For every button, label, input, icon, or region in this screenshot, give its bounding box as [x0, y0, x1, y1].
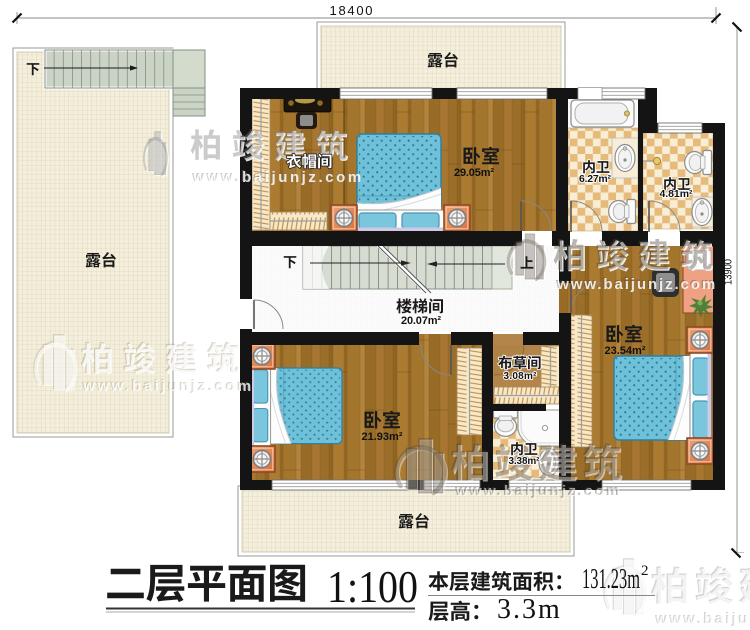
svg-text:3.38m²: 3.38m²: [509, 456, 541, 467]
svg-text:2: 2: [641, 563, 649, 579]
svg-text:20.07m²: 20.07m²: [401, 315, 441, 327]
svg-text:131.23m: 131.23m: [582, 564, 640, 595]
svg-text:3.08m²: 3.08m²: [504, 371, 538, 382]
svg-text:21.93m²: 21.93m²: [362, 431, 403, 443]
svg-text:4.81m²: 4.81m²: [660, 188, 694, 200]
svg-text:1:100: 1:100: [327, 561, 418, 612]
svg-text:18400: 18400: [330, 3, 373, 18]
svg-text:3.3m: 3.3m: [497, 594, 562, 625]
svg-text:23.54m²: 23.54m²: [605, 345, 646, 357]
svg-text:6.27m²: 6.27m²: [579, 173, 612, 185]
svg-text:13900: 13900: [723, 259, 735, 285]
svg-text:29.05m²: 29.05m²: [454, 167, 494, 179]
